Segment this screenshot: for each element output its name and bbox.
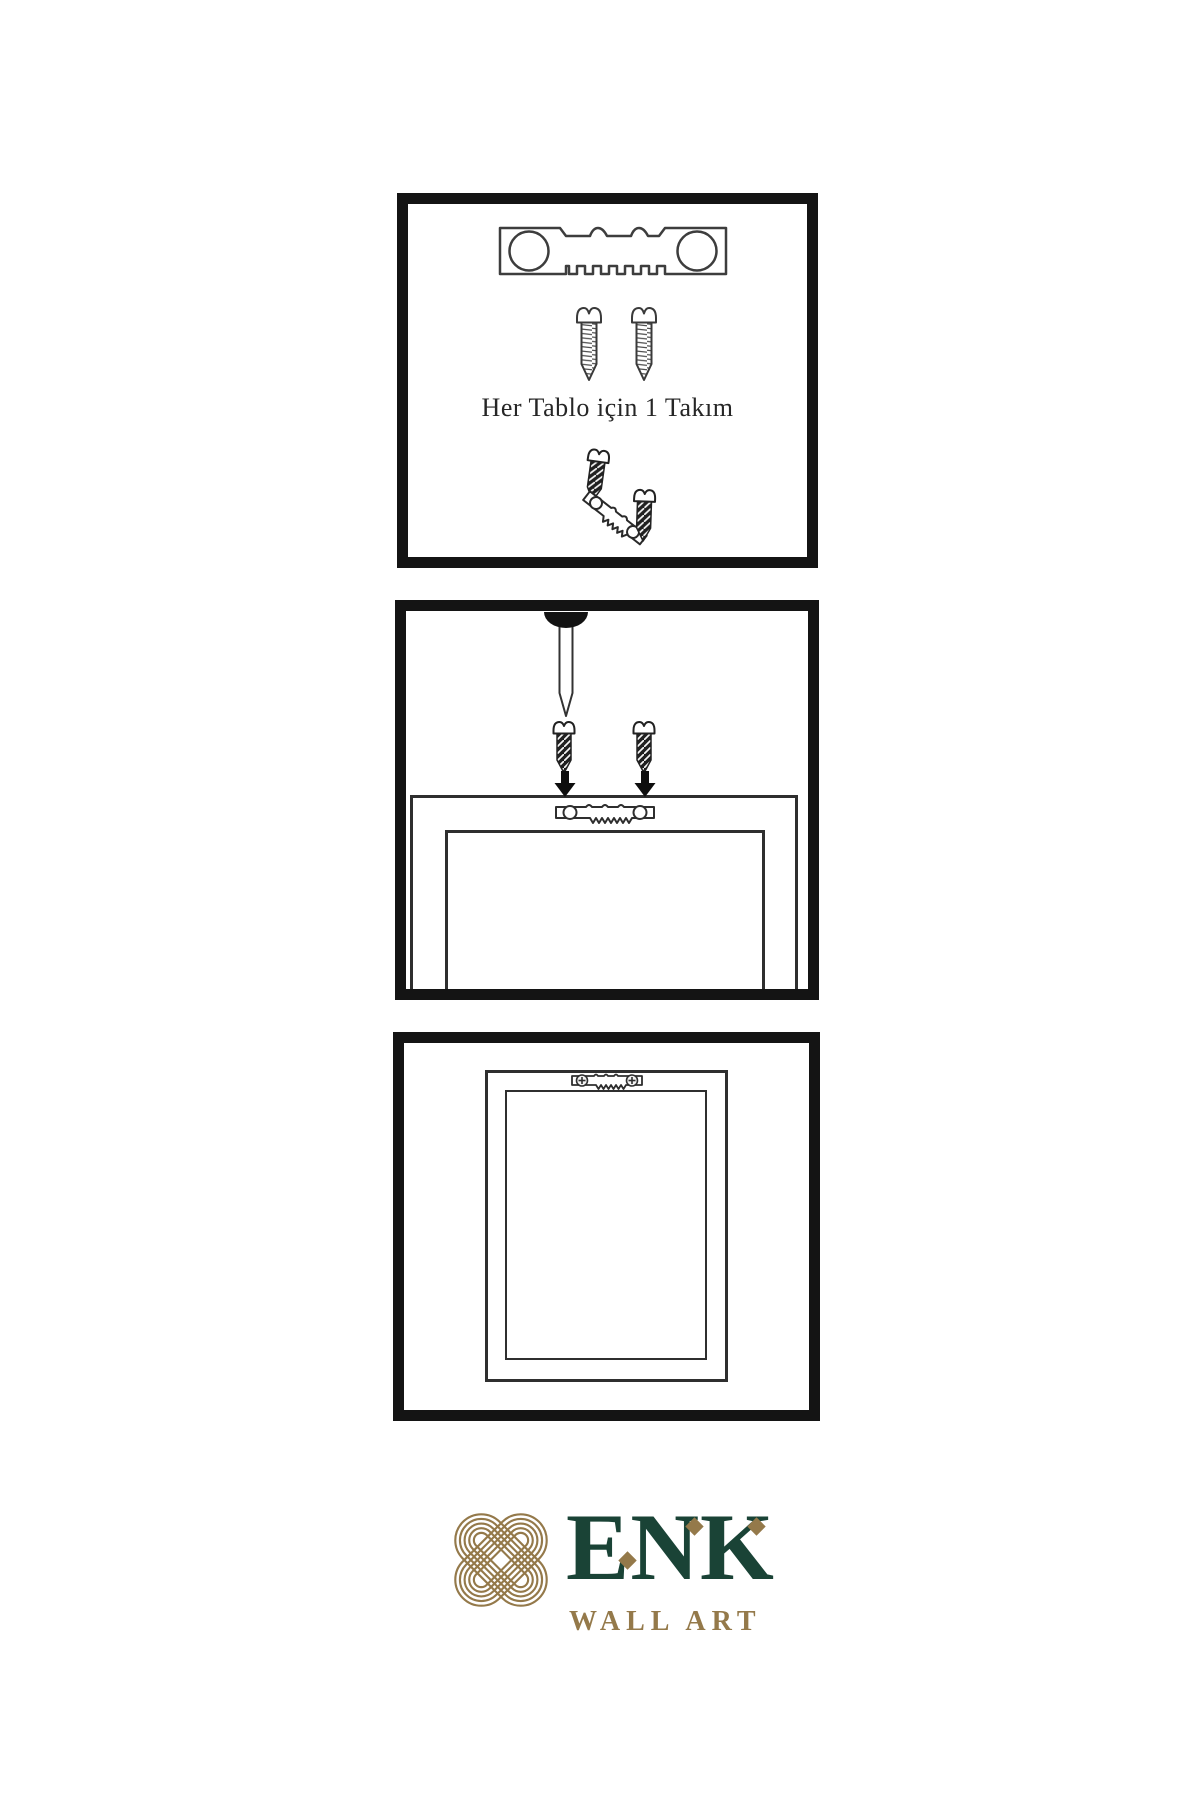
down-arrow-icon: [554, 770, 576, 798]
sawtooth-hanger-icon: [496, 224, 730, 278]
dark-screw-icon: [630, 719, 658, 777]
dark-screw-icon: [550, 719, 578, 777]
brand-logo: ENK WALL ART: [430, 1490, 820, 1645]
kit-caption: Her Tablo için 1 Takım: [408, 393, 807, 423]
knot-logo-icon: [436, 1493, 566, 1627]
frame-inner-panel: [505, 1090, 707, 1360]
nail-in-wall-icon: [544, 611, 588, 723]
instruction-sheet: Her Tablo için 1 Takım: [0, 0, 1200, 1800]
down-arrow-icon: [634, 770, 656, 798]
panel-frame-hung: [393, 1032, 820, 1421]
dark-screw-icon: [629, 487, 659, 546]
screw-icon: [629, 305, 659, 385]
panel-wall-mounting: [395, 600, 819, 1000]
sawtooth-hanger-icon: [553, 802, 657, 826]
brand-name: ENK: [566, 1498, 775, 1598]
brand-subtitle: WALL ART: [569, 1606, 762, 1638]
panel-hardware-kit: Her Tablo için 1 Takım: [397, 193, 818, 568]
screw-icon: [574, 305, 604, 385]
mounted-sawtooth-hanger-icon: [570, 1072, 644, 1092]
screw-into-hanger-illustration: [570, 447, 670, 553]
frame-inner-panel: [445, 830, 765, 1000]
